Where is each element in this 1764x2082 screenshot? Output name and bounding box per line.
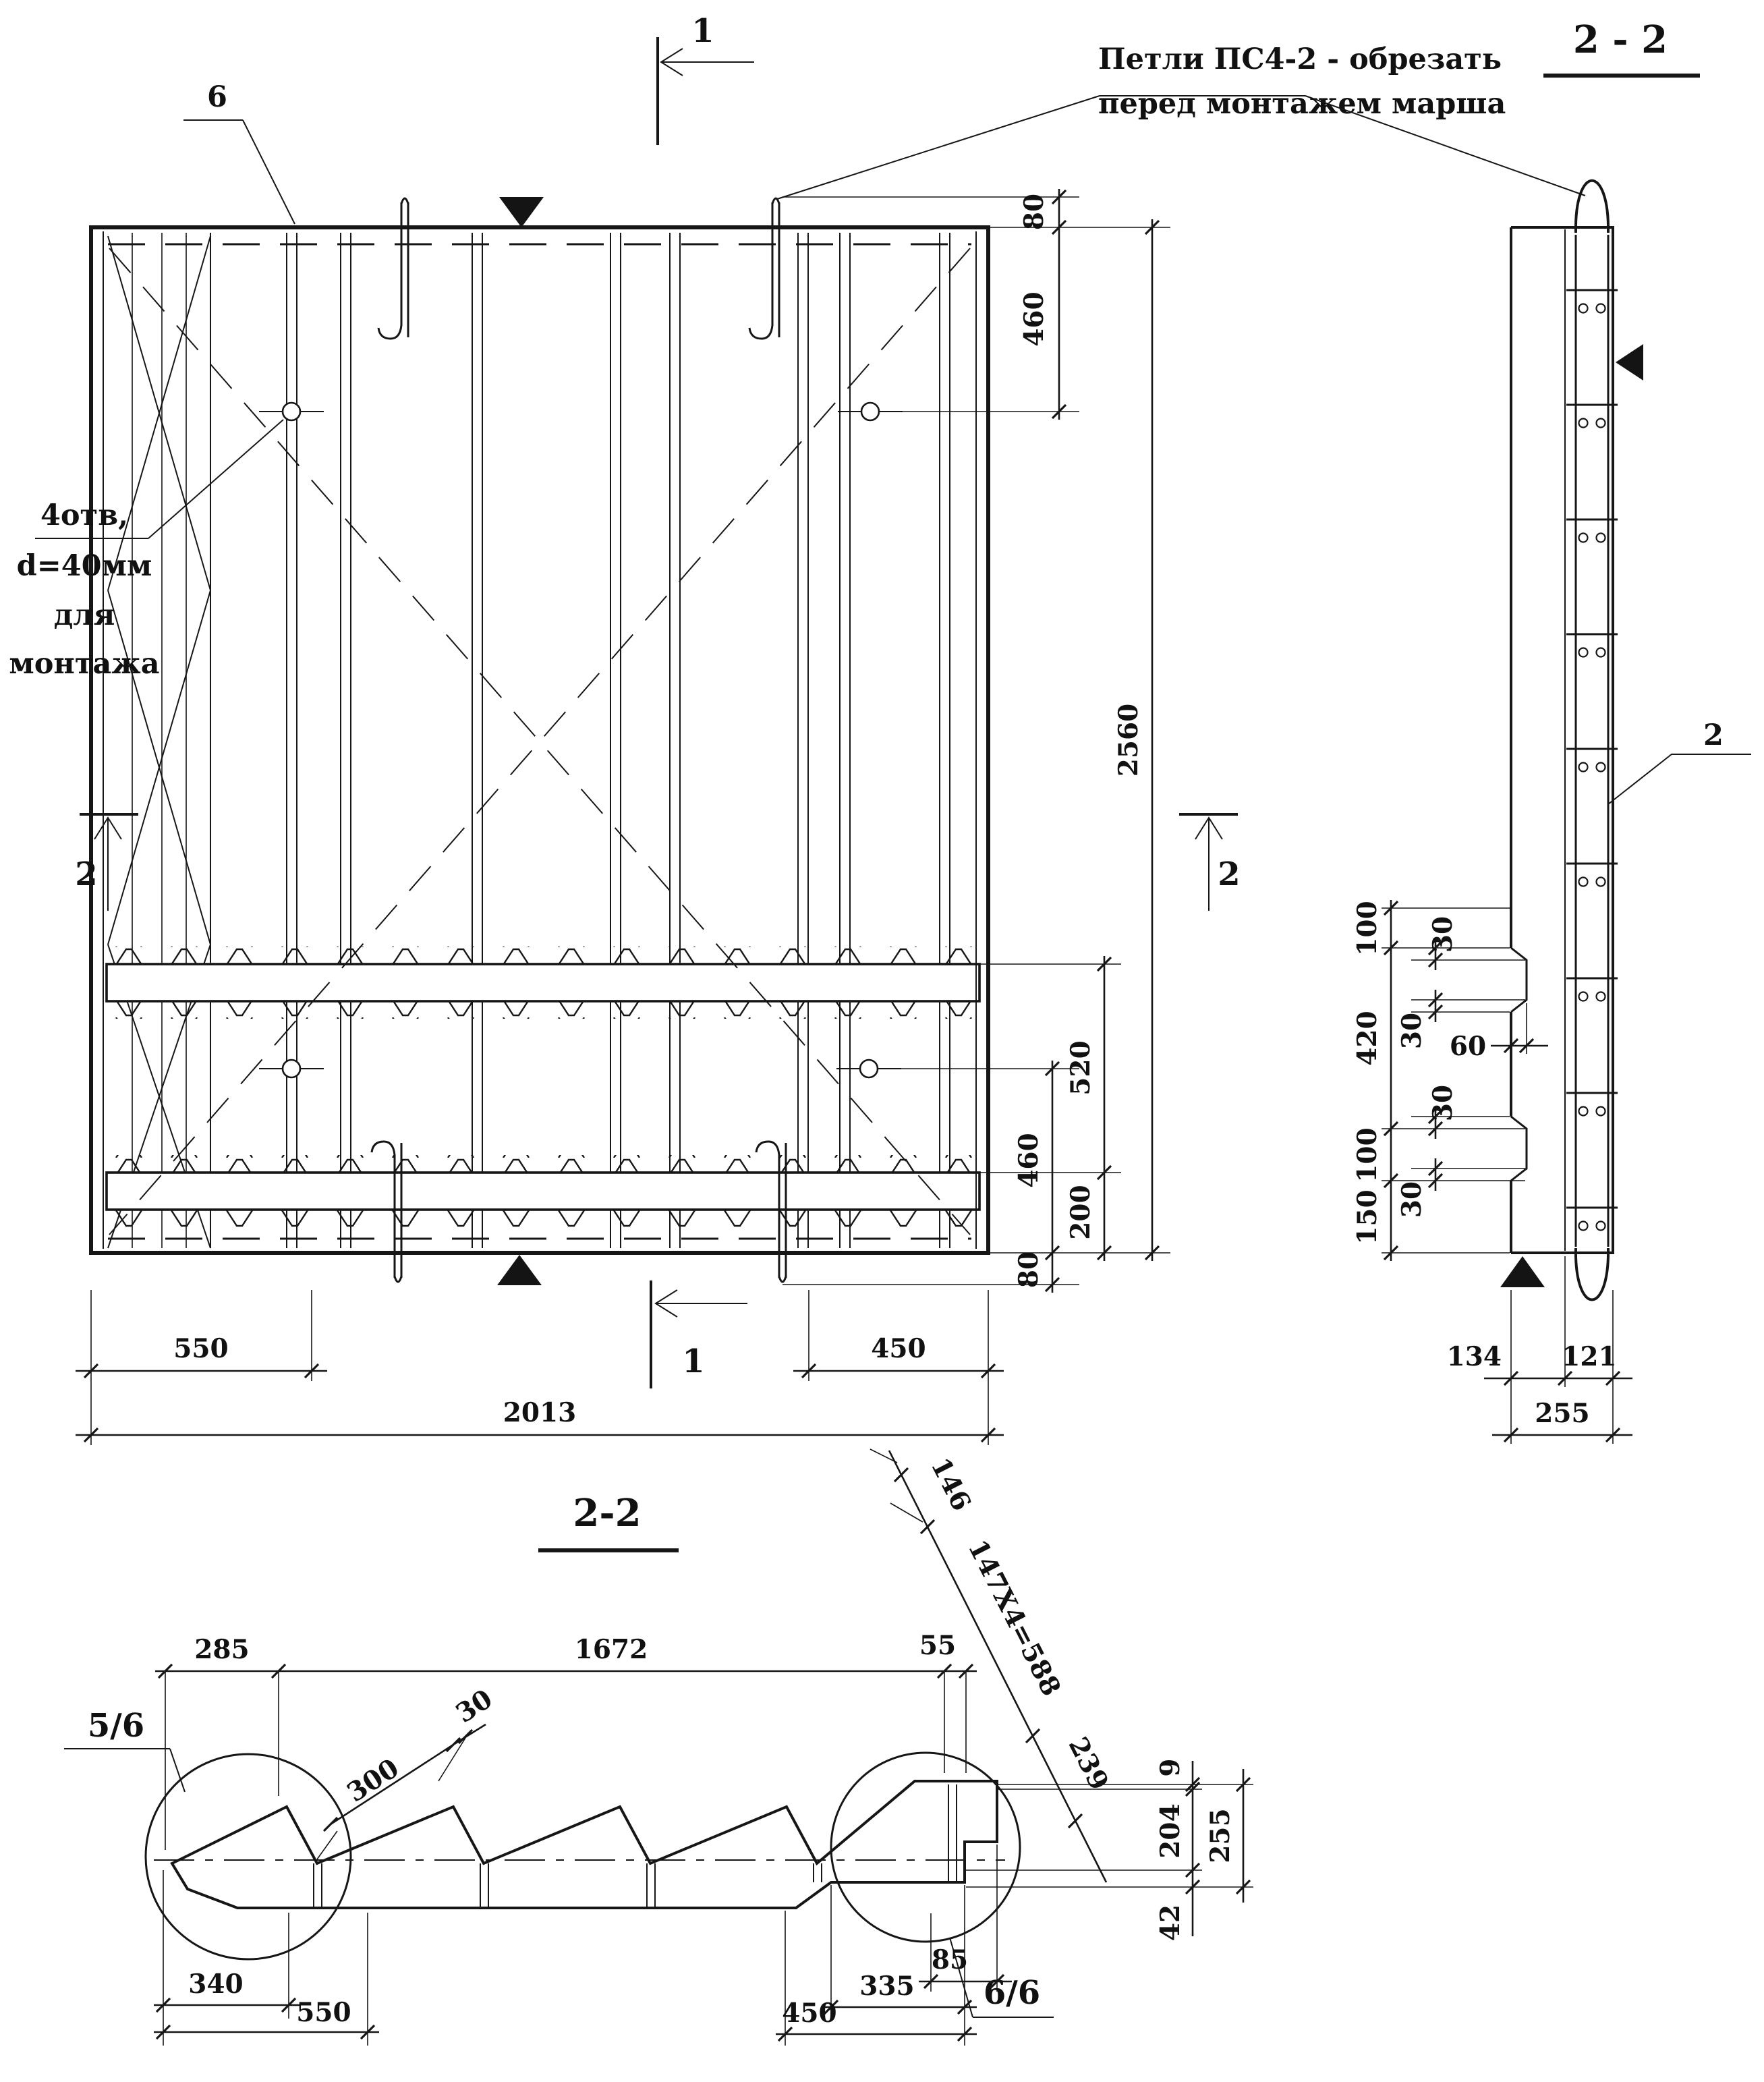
dim-side-30-a: 30 bbox=[1427, 916, 1458, 953]
dim-side-100-top: 100 bbox=[1352, 901, 1383, 955]
loop-top bbox=[1576, 181, 1608, 233]
bottom-title-label: 2-2 bbox=[573, 1491, 641, 1536]
dim-sec-588: 147X4=588 bbox=[962, 1535, 1067, 1701]
bottom-section-title: 2-2 bbox=[538, 1491, 679, 1550]
holes-note-line4: монтажа bbox=[9, 647, 159, 681]
dim-sec-9: 9 bbox=[1155, 1758, 1186, 1776]
lifting-hook-top-left bbox=[378, 198, 408, 339]
callout-2-label: 2 bbox=[1703, 719, 1724, 752]
rebar-circles bbox=[1579, 304, 1605, 1231]
lifting-hook-top-right bbox=[749, 198, 779, 339]
section-marker-1-bottom: 1 bbox=[651, 1281, 747, 1388]
dim-sec-1672: 1672 bbox=[575, 1634, 648, 1665]
dim-side-150: 150 bbox=[1352, 1189, 1383, 1244]
loop-note-line2: перед монтажем марша bbox=[1098, 87, 1506, 121]
dim-sec-450: 450 bbox=[782, 1998, 836, 2029]
dim-plan-450: 450 bbox=[871, 1333, 926, 1364]
dim-side-30-c: 30 bbox=[1427, 1085, 1458, 1121]
marker-1-label: 1 bbox=[682, 1343, 704, 1380]
rib-band-lower bbox=[107, 1173, 979, 1210]
side-level-mark-right bbox=[1616, 344, 1643, 381]
dim-plan-550: 550 bbox=[173, 1333, 228, 1364]
dim-sec-146: 146 bbox=[925, 1453, 977, 1515]
section-marker-2-right: 2 bbox=[1179, 814, 1241, 911]
dim-sec-340: 340 bbox=[188, 1969, 243, 2000]
marker-2-label: 2 bbox=[75, 855, 97, 893]
section-dims-diagonal: 146 147X4=588 239 bbox=[870, 1449, 1115, 1882]
level-mark-top bbox=[499, 197, 544, 227]
plan-dims-bottom: 550 450 2013 bbox=[76, 1290, 1004, 1445]
side-view: 2 bbox=[1500, 181, 1751, 1300]
dim-side-30-d: 30 bbox=[1396, 1181, 1427, 1218]
dim-side-30-b: 30 bbox=[1396, 1013, 1427, 1049]
dim-plan-200: 200 bbox=[1065, 1185, 1096, 1239]
detail-left-label: 5/6 bbox=[88, 1707, 144, 1745]
dim-side-100-bot: 100 bbox=[1352, 1127, 1383, 1182]
drawing-sheet: 1 1 2 2 6 4отв, d=40мм для монтажа Петли… bbox=[0, 0, 1764, 2082]
holes-note-line1: 4отв, bbox=[40, 499, 128, 532]
section-dims-right: 9 204 42 255 bbox=[966, 1758, 1253, 1941]
level-mark-bottom bbox=[497, 1255, 542, 1285]
dim-plan-520: 520 bbox=[1065, 1040, 1096, 1095]
dim-sec-42: 42 bbox=[1155, 1905, 1186, 1941]
dim-sec-239: 239 bbox=[1062, 1732, 1115, 1795]
detail-right-label: 6/6 bbox=[984, 1974, 1040, 2012]
detail-circle-left bbox=[146, 1754, 351, 1959]
dim-sec-255: 255 bbox=[1205, 1808, 1236, 1863]
callout-2: 2 bbox=[1608, 719, 1751, 804]
dim-plan-460-top: 460 bbox=[1019, 291, 1050, 346]
dim-sec-300: 300 bbox=[341, 1753, 404, 1809]
dim-plan-460-bot: 460 bbox=[1013, 1133, 1044, 1187]
plan-view bbox=[91, 197, 988, 1285]
loop-note: Петли ПС4-2 - обрезать перед монтажем ма… bbox=[777, 43, 1585, 199]
dim-side-60: 60 bbox=[1450, 1031, 1486, 1062]
holes-note-line2: d=40мм bbox=[17, 549, 152, 583]
section-dims-top: 285 1672 55 bbox=[155, 1630, 977, 1850]
dim-plan-80-top: 80 bbox=[1019, 194, 1050, 230]
drawing-canvas: 1 1 2 2 6 4отв, d=40мм для монтажа Петли… bbox=[0, 0, 1764, 2082]
section-marker-1-top: 1 bbox=[658, 12, 754, 145]
lattice-column bbox=[108, 233, 210, 1248]
dim-sec-285: 285 bbox=[194, 1634, 249, 1665]
callout-6-label: 6 bbox=[207, 80, 227, 114]
loop-note-line1: Петли ПС4-2 - обрезать bbox=[1098, 43, 1502, 76]
rib-band-upper bbox=[107, 964, 979, 1001]
diagonal-axes bbox=[109, 248, 970, 1235]
marker-1-label: 1 bbox=[691, 12, 714, 50]
section-dim-tread: 300 30 bbox=[317, 1683, 498, 1859]
dim-sec-85: 85 bbox=[932, 1944, 968, 1975]
loop-bottom bbox=[1576, 1248, 1608, 1300]
section-marker-2-left: 2 bbox=[75, 814, 138, 911]
dim-sec-204: 204 bbox=[1155, 1803, 1186, 1858]
dim-side-420: 420 bbox=[1352, 1011, 1383, 1065]
side-level-mark-bottom bbox=[1500, 1256, 1545, 1287]
dim-plan-80-bot: 80 bbox=[1013, 1251, 1044, 1288]
dim-side-255: 255 bbox=[1535, 1398, 1589, 1429]
dim-sec-30: 30 bbox=[451, 1683, 499, 1729]
marker-2-label: 2 bbox=[1218, 855, 1240, 893]
dim-sec-550: 550 bbox=[296, 1997, 351, 2028]
section-dims-bottom-right: 85 335 450 bbox=[776, 1845, 1012, 2046]
holes-note-line3: для bbox=[54, 598, 115, 632]
side-section-title: 2 - 2 bbox=[1543, 18, 1700, 76]
callout-6: 6 bbox=[183, 80, 295, 224]
side-title-label: 2 - 2 bbox=[1573, 18, 1668, 62]
dim-plan-2013: 2013 bbox=[503, 1397, 577, 1428]
dim-side-121: 121 bbox=[1562, 1341, 1616, 1372]
callout-5-6: 5/6 bbox=[64, 1707, 185, 1792]
dim-sec-335: 335 bbox=[859, 1971, 914, 2002]
dim-side-134: 134 bbox=[1447, 1341, 1502, 1372]
dim-plan-2560: 2560 bbox=[1113, 704, 1144, 777]
dim-sec-55: 55 bbox=[919, 1630, 956, 1661]
stair-profile bbox=[172, 1781, 997, 1908]
side-dims-left: 100 420 100 150 30 30 30 30 bbox=[1352, 900, 1525, 1261]
